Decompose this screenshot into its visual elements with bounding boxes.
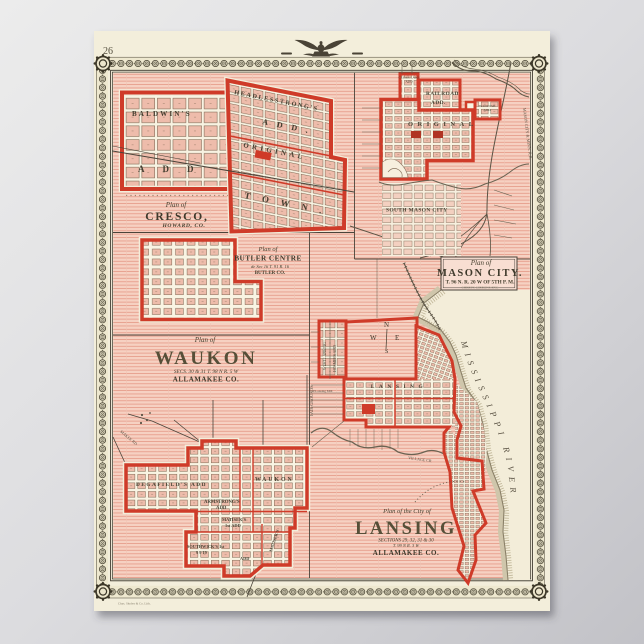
svg-text:CRESCO,: CRESCO,: [145, 211, 208, 223]
svg-text:N: N: [384, 321, 389, 329]
svg-text:SECS. 30 & 31 T. 98 N R. 5 W: SECS. 30 & 31 T. 98 N R. 5 W: [174, 369, 239, 375]
svg-text:ALLAMAKEE CO.: ALLAMAKEE CO.: [373, 549, 439, 557]
svg-text:WEST LANSING: WEST LANSING: [323, 342, 327, 370]
svg-text:1st ADD: 1st ADD: [225, 523, 241, 528]
svg-text:BALDWIN'S: BALDWIN'S: [132, 110, 192, 118]
svg-text:Plan of the City of: Plan of the City of: [382, 508, 432, 515]
svg-text:BUTLER CO.: BUTLER CO.: [255, 271, 286, 276]
svg-text:HOWARD, CO.: HOWARD, CO.: [161, 223, 205, 229]
svg-text:Chas. Shober & Co. Lith.: Chas. Shober & Co. Lith.: [118, 602, 151, 606]
svg-text:ADD: ADD: [483, 108, 491, 112]
svg-text:Plan of: Plan of: [470, 259, 492, 267]
svg-text:ADD.: ADD.: [431, 100, 446, 106]
svg-text:T. 99 N R. 3 W: T. 99 N R. 3 W: [393, 543, 421, 548]
svg-text:ALLAMAKEE CO.: ALLAMAKEE CO.: [173, 376, 239, 384]
svg-text:LANSING: LANSING: [355, 519, 457, 539]
svg-text:BUTLER CENTRE: BUTLER CENTRE: [234, 254, 301, 263]
svg-text:DEGAFIELD'S ADD: DEGAFIELD'S ADD: [136, 482, 207, 488]
svg-text:ARMSTRONG'S: ARMSTRONG'S: [204, 500, 240, 505]
svg-text:de Sec 16 T. 91 R. 16: de Sec 16 T. 91 R. 16: [251, 264, 290, 269]
svg-text:HOSMERS ADD: HOSMERS ADD: [333, 345, 337, 372]
svg-text:RAILROAD: RAILROAD: [426, 91, 459, 97]
svg-text:Plan of: Plan of: [258, 246, 279, 253]
svg-text:WAUKON: WAUKON: [155, 348, 258, 369]
svg-text:MATISEK'S: MATISEK'S: [222, 517, 247, 522]
svg-text:P.Lansing Mill: P.Lansing Mill: [313, 389, 333, 393]
svg-text:9 9 19: 9 9 19: [196, 550, 207, 555]
svg-text:S: S: [385, 349, 388, 355]
svg-text:26: 26: [103, 46, 113, 57]
svg-text:CHEBYS GIBBONS ENG: CHEBYS GIBBONS ENG: [462, 286, 499, 290]
svg-text:ADD: ADD: [240, 556, 249, 561]
svg-text:E: E: [395, 334, 399, 342]
svg-text:SOUTHWICK'S 1st: SOUTHWICK'S 1st: [187, 544, 225, 549]
svg-text:ADD: ADD: [216, 506, 227, 511]
svg-text:ADD: ADD: [138, 164, 212, 174]
svg-text:ORIGINAL: ORIGINAL: [408, 121, 478, 128]
svg-text:SOUTH MASON CITY: SOUTH MASON CITY: [386, 208, 448, 214]
svg-text:WAUKON: WAUKON: [255, 477, 294, 483]
svg-text:Plan of: Plan of: [165, 201, 187, 209]
svg-text:Plan of: Plan of: [194, 336, 216, 344]
svg-text:ADD: ADD: [405, 80, 413, 84]
svg-text:W: W: [370, 334, 377, 342]
svg-text:LANSING: LANSING: [371, 384, 428, 390]
svg-text:MASON CITY.: MASON CITY.: [437, 268, 523, 279]
